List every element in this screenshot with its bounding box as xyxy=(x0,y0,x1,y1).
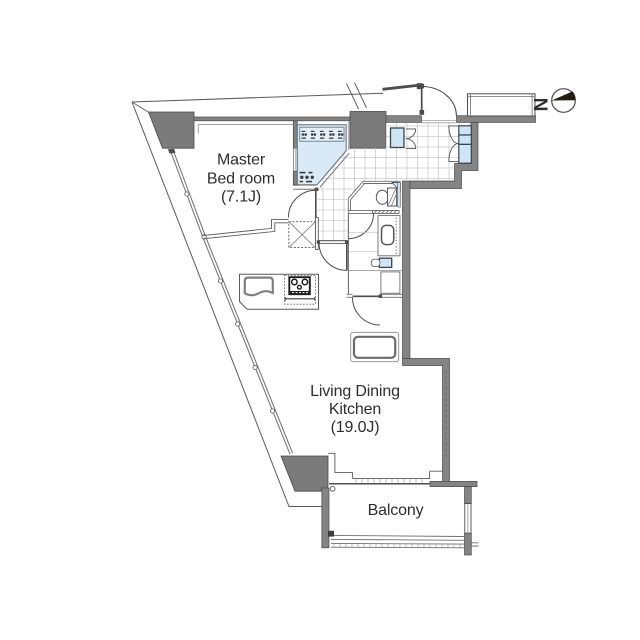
svg-text:(7.1J): (7.1J) xyxy=(221,189,261,206)
svg-text:Living Dining: Living Dining xyxy=(310,383,400,400)
svg-text:Master: Master xyxy=(217,152,266,169)
svg-text:Kitchen: Kitchen xyxy=(329,401,381,418)
svg-text:N: N xyxy=(532,98,553,112)
svg-text:(19.0J): (19.0J) xyxy=(331,419,380,436)
svg-text:Bed room: Bed room xyxy=(207,170,275,187)
svg-text:Balcony: Balcony xyxy=(368,502,424,519)
